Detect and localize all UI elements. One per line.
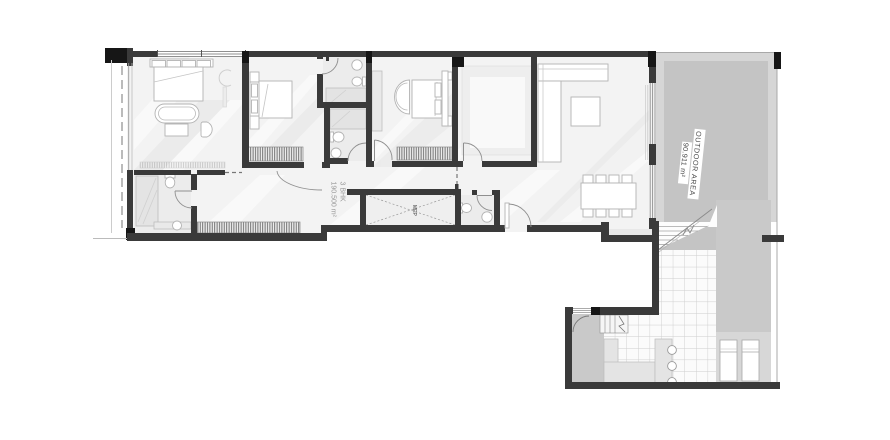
svg-text:MEP: MEP (411, 205, 417, 217)
svg-text:3 BHK: 3 BHK (339, 182, 346, 203)
svg-text:190.500 m²: 190.500 m² (330, 182, 337, 218)
